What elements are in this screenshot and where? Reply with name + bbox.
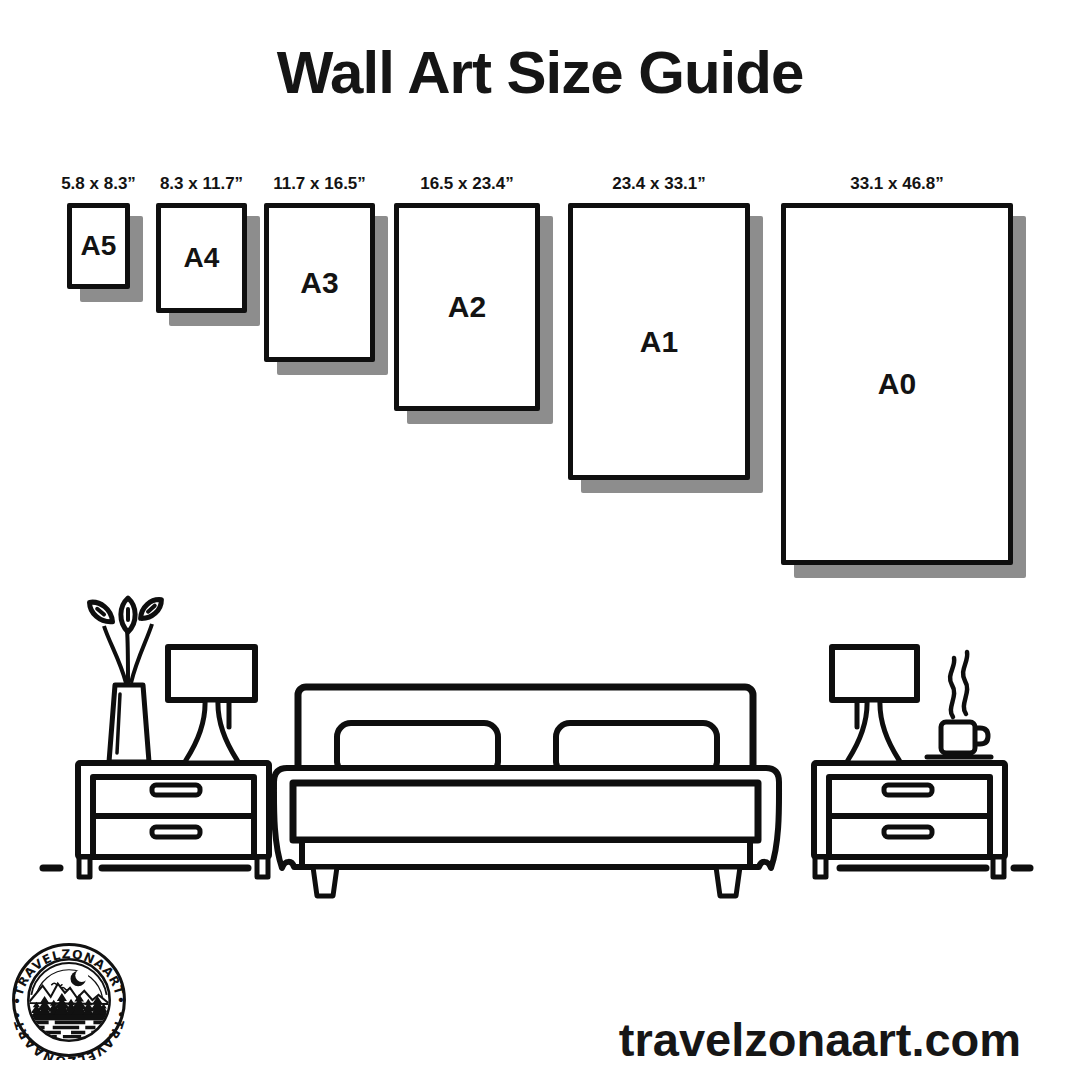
frame-size-letter: A4 bbox=[184, 242, 220, 274]
poster-frame-a0: A0 bbox=[781, 203, 1013, 565]
size-item-a5: 5.8 x 8.3” A5 bbox=[67, 203, 130, 289]
travelzonaart-logo: •TRAVELZONAART• •TRAVELZONAART• bbox=[10, 940, 128, 1060]
frame-size-letter: A3 bbox=[300, 266, 338, 300]
poster-frame-a1: A1 bbox=[568, 203, 750, 480]
frame-dimensions-label: 16.5 x 23.4” bbox=[420, 174, 514, 194]
bedroom-scene-illustration bbox=[0, 590, 1080, 910]
size-item-a0: 33.1 x 46.8” A0 bbox=[781, 203, 1013, 565]
size-item-a4: 8.3 x 11.7” A4 bbox=[156, 203, 247, 313]
poster-frame-a4: A4 bbox=[156, 203, 247, 313]
frame-dimensions-label: 8.3 x 11.7” bbox=[160, 174, 243, 194]
page-title: Wall Art Size Guide bbox=[0, 38, 1080, 107]
poster-frame-a5: A5 bbox=[67, 203, 130, 289]
bed-icon bbox=[274, 687, 779, 896]
table-lamp-left-icon bbox=[168, 647, 255, 763]
frame-dimensions-label: 33.1 x 46.8” bbox=[850, 174, 944, 194]
nightstand-left-icon bbox=[78, 763, 269, 877]
table-lamp-right-icon bbox=[832, 647, 917, 763]
coffee-cup-icon bbox=[927, 652, 991, 757]
frame-dimensions-label: 11.7 x 16.5” bbox=[273, 174, 366, 194]
frame-size-letter: A1 bbox=[640, 325, 678, 359]
frame-size-letter: A2 bbox=[448, 290, 486, 324]
size-guide-poster: Wall Art Size Guide 5.8 x 8.3” A5 8.3 x … bbox=[0, 0, 1080, 1080]
frame-size-letter: A0 bbox=[878, 367, 916, 401]
frame-dimensions-label: 23.4 x 33.1” bbox=[612, 174, 706, 194]
frame-size-letter: A5 bbox=[81, 230, 117, 262]
frame-dimensions-label: 5.8 x 8.3” bbox=[61, 174, 136, 194]
poster-frame-a3: A3 bbox=[264, 203, 375, 362]
nightstand-right-icon bbox=[814, 763, 1005, 877]
vase-plant-icon bbox=[85, 595, 165, 762]
size-item-a2: 16.5 x 23.4” A2 bbox=[394, 203, 540, 411]
poster-frame-a2: A2 bbox=[394, 203, 540, 411]
size-item-a1: 23.4 x 33.1” A1 bbox=[568, 203, 750, 480]
website-url: travelzonaart.com bbox=[560, 1012, 1080, 1067]
size-item-a3: 11.7 x 16.5” A3 bbox=[264, 203, 375, 362]
